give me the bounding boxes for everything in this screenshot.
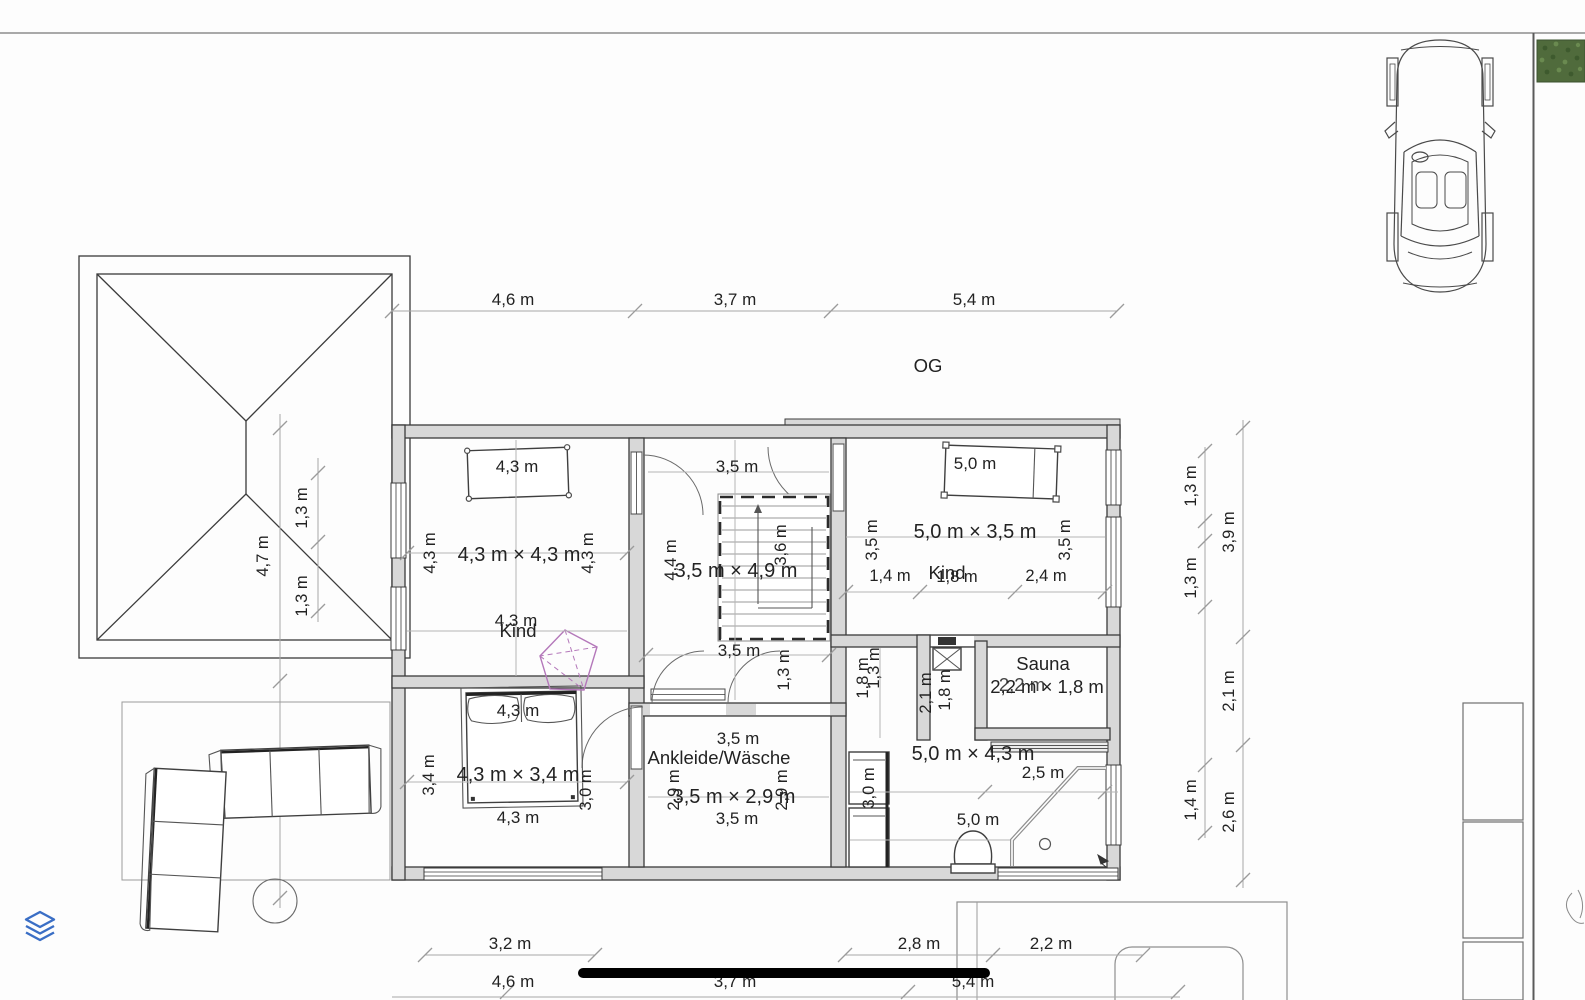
svg-text:1,3 m: 1,3 m xyxy=(1182,557,1200,598)
svg-text:1,3 m: 1,3 m xyxy=(1182,465,1200,506)
shower[interactable] xyxy=(1012,768,1108,867)
dim-label: 5,4 m xyxy=(953,290,996,309)
room-size: 5,0 m × 3,5 m xyxy=(914,521,1037,543)
svg-text:2,1 m: 2,1 m xyxy=(917,672,935,713)
dim-label: 4,6 m xyxy=(492,290,535,309)
room-size: 4,3 m × 3,4 m xyxy=(457,764,580,786)
svg-text:4,3 m: 4,3 m xyxy=(421,532,439,573)
room-size: 5,0 m × 4,3 m xyxy=(912,743,1035,765)
svg-text:3,2 m: 3,2 m xyxy=(489,934,532,953)
svg-text:2,4 m: 2,4 m xyxy=(1025,567,1066,585)
svg-text:3,0 m: 3,0 m xyxy=(577,769,595,810)
bottom-dimension-lines: 3,2 m 2,8 m 2,2 m 4,6 m 3,7 m 5,4 m xyxy=(392,934,1185,999)
svg-text:3,5 m: 3,5 m xyxy=(718,641,761,660)
floor-plan: 3,6 m xyxy=(391,419,1121,880)
right-dimension-chain: 1,3 m 1,3 m 1,4 m 3,9 m 2,1 m 2,6 m xyxy=(1182,420,1250,888)
shower-drain-icon xyxy=(1040,839,1051,850)
room-name: Ankleide/Wäsche xyxy=(648,747,791,768)
svg-text:4,3 m: 4,3 m xyxy=(579,532,597,573)
svg-text:3,4 m: 3,4 m xyxy=(420,754,438,795)
room-name: Kind xyxy=(499,620,536,641)
wardrobe-stack[interactable] xyxy=(1463,703,1523,1000)
floor-label: OG xyxy=(914,355,943,376)
layers-icon xyxy=(26,912,54,927)
hedge[interactable] xyxy=(1537,40,1585,82)
svg-text:2,2 m: 2,2 m xyxy=(999,674,1045,695)
dim-label: 4,7 m xyxy=(254,535,272,576)
scale-bar xyxy=(578,968,990,978)
svg-text:2,2 m: 2,2 m xyxy=(1030,934,1073,953)
svg-text:2,6 m: 2,6 m xyxy=(1220,791,1238,832)
svg-text:1,4 m: 1,4 m xyxy=(869,567,910,585)
svg-text:3,5 m: 3,5 m xyxy=(716,809,759,828)
svg-text:1,8 m: 1,8 m xyxy=(936,669,954,710)
floorplan-canvas[interactable]: 4,7 m 3,8 m 1,3 m 1,3 m 4,6 m 3,7 m 5,4 … xyxy=(0,0,1585,1000)
svg-text:4,3 m: 4,3 m xyxy=(497,808,540,827)
svg-text:1,3 m: 1,3 m xyxy=(775,649,793,690)
left-dimension-chain: 4,7 m 3,8 m 1,3 m 1,3 m xyxy=(254,414,325,908)
svg-text:3,9 m: 3,9 m xyxy=(1220,511,1238,552)
dim-label: 1,3 m xyxy=(293,487,311,528)
toilet[interactable] xyxy=(951,831,995,873)
top-dimension-line: 4,6 m 3,7 m 5,4 m xyxy=(385,290,1124,318)
bed-dim: 5,0 m xyxy=(954,454,997,473)
room-size: 4,3 m × 4,3 m xyxy=(458,544,581,566)
svg-text:4,6 m: 4,6 m xyxy=(492,972,535,991)
dim-label: 3,7 m xyxy=(714,290,757,309)
plant-icon xyxy=(1566,890,1584,923)
sofa-group[interactable] xyxy=(122,702,390,934)
bed-dim: 4,3 m xyxy=(496,457,539,476)
svg-text:1,4 m: 1,4 m xyxy=(1182,779,1200,820)
svg-text:3,5 m: 3,5 m xyxy=(863,519,881,560)
dim-label: 1,3 m xyxy=(293,575,311,616)
svg-text:3,5 m: 3,5 m xyxy=(717,729,760,748)
svg-text:2,8 m: 2,8 m xyxy=(898,934,941,953)
svg-text:3,5 m: 3,5 m xyxy=(716,457,759,476)
bed-dim: 4,3 m xyxy=(497,701,540,720)
room-size: 3,5 m × 2,9 m xyxy=(673,786,796,808)
svg-text:5,0 m: 5,0 m xyxy=(957,810,1000,829)
car[interactable] xyxy=(1385,40,1495,292)
roof[interactable] xyxy=(79,256,410,658)
side-table xyxy=(253,879,297,923)
room-size: 3,5 m × 4,9 m xyxy=(675,560,798,582)
lower-floor-outline xyxy=(957,902,1287,1000)
svg-text:1,3 m: 1,3 m xyxy=(865,647,883,688)
svg-text:3,0 m: 3,0 m xyxy=(860,767,878,808)
svg-text:2,5 m: 2,5 m xyxy=(1022,763,1065,782)
layers-button[interactable] xyxy=(26,912,54,940)
svg-text:1,8 m: 1,8 m xyxy=(936,568,977,586)
room-name: Sauna xyxy=(1016,653,1070,674)
svg-text:3,5 m: 3,5 m xyxy=(1056,519,1074,560)
svg-text:2,1 m: 2,1 m xyxy=(1220,670,1238,711)
